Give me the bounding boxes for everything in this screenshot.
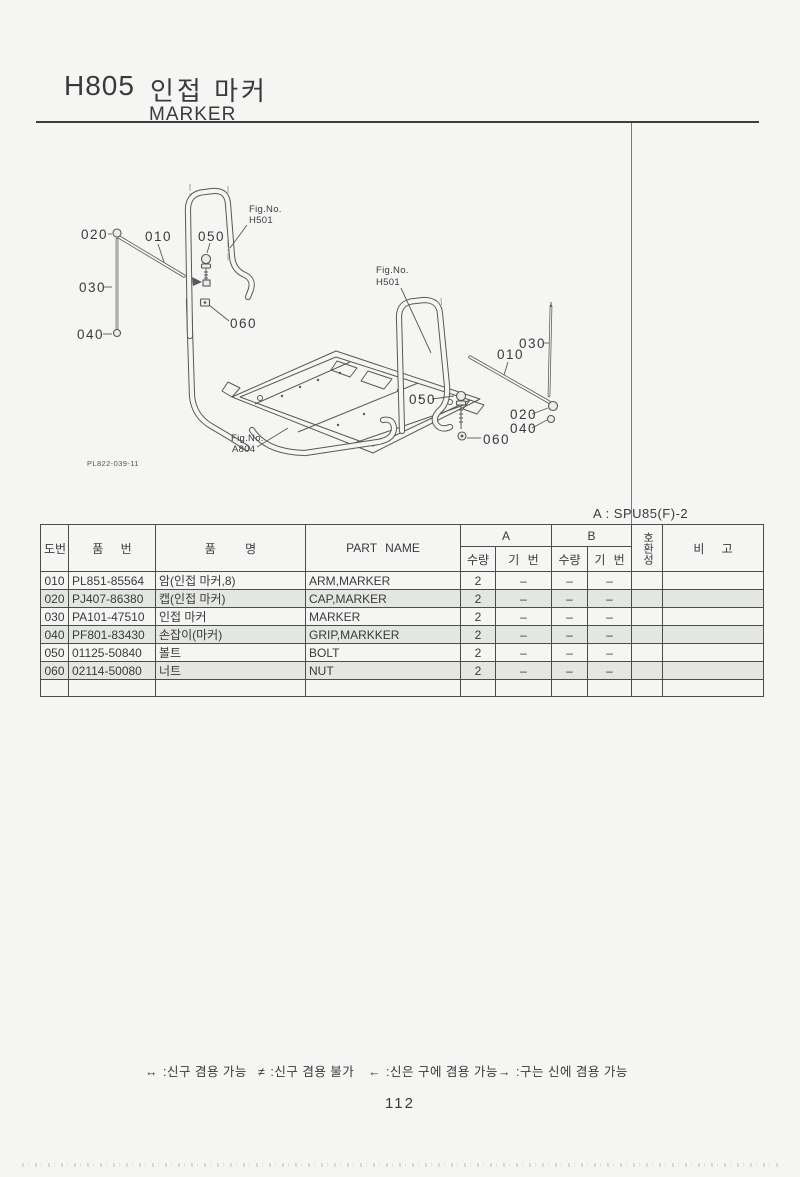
- legend-item-not-interchangeable: ≠:신구 겸용 불가: [258, 1061, 354, 1080]
- cell-serial-a: –: [496, 590, 552, 608]
- fig-ref-a804: A804: [232, 444, 255, 455]
- cell-name-ko: 너트: [156, 662, 306, 680]
- cell-part-no: PA101-47510: [69, 608, 156, 626]
- callout-010-left: 010: [145, 229, 172, 244]
- cell-qty-a: 2: [461, 626, 496, 644]
- cell-part-no: 02114-50080: [69, 662, 156, 680]
- cell-qty-b: –: [552, 608, 588, 626]
- cap-020-right: [549, 402, 558, 411]
- cell-no: 030: [41, 608, 69, 626]
- cell-name-ko: 볼트: [156, 644, 306, 662]
- callout-010-right: 010: [497, 347, 524, 362]
- legend-text: :신구 겸용 가능: [163, 1065, 247, 1079]
- table-row: 020 PJ407-86380 캡(인접 마커) CAP,MARKER 2 – …: [41, 590, 764, 608]
- fig-ref-label-left: Fig.No.: [249, 204, 282, 215]
- cell-part-name: MARKER: [306, 608, 461, 626]
- page-number: 112: [0, 1095, 800, 1112]
- fig-ref-label-right: Fig.No.: [376, 265, 409, 276]
- cell-serial-b: –: [588, 626, 632, 644]
- assembly-arrow: [192, 277, 202, 286]
- cell-serial-a: –: [496, 572, 552, 590]
- double-arrow-icon: ↔: [145, 1065, 158, 1079]
- bolt-050-left: [202, 255, 211, 282]
- cell-no: 050: [41, 644, 69, 662]
- cell-compat: [632, 590, 663, 608]
- nut-060-right: [458, 432, 466, 440]
- cell-remark: [663, 572, 764, 590]
- catalog-page: H805 인접 마커 MARKER: [0, 0, 800, 1177]
- nut-060-left: [201, 299, 210, 306]
- col-group-a: A: [461, 525, 552, 547]
- parts-diagram: 020 010 050 030 040 060 Fig.No. H501 Fig…: [0, 0, 800, 528]
- cell-serial-b: –: [588, 644, 632, 662]
- cell-name-ko: 손잡이(마커): [156, 626, 306, 644]
- legend-text: :신구 겸용 불가: [270, 1065, 354, 1079]
- cell-compat: [632, 644, 663, 662]
- drawing-number: PL822-039-11: [87, 459, 139, 468]
- cell-serial-b: –: [588, 572, 632, 590]
- cell-serial-a: –: [496, 608, 552, 626]
- cell-qty-b: –: [552, 644, 588, 662]
- cell-remark: [663, 644, 764, 662]
- cell-part-name: GRIP,MARKKER: [306, 626, 461, 644]
- table-row: 030 PA101-47510 인접 마커 MARKER 2 – – –: [41, 608, 764, 626]
- cell-no: 040: [41, 626, 69, 644]
- callout-020-left: 020: [81, 227, 108, 242]
- col-header-remark: 비 고: [663, 525, 764, 572]
- legend-item-interchangeable: ↔:신구 겸용 가능: [145, 1061, 247, 1080]
- cell-part-name: ARM,MARKER: [306, 572, 461, 590]
- callout-020-right: 020: [510, 407, 537, 422]
- cell-serial-a: –: [496, 626, 552, 644]
- left-arrow-icon: ←: [368, 1065, 381, 1079]
- col-header-name-ko: 품 명: [156, 525, 306, 572]
- fig-ref-h501-right: H501: [376, 277, 400, 288]
- cell-part-no: 01125-50840: [69, 644, 156, 662]
- col-header-qty-a: 수량: [461, 547, 496, 572]
- joint-plate-left: [203, 280, 210, 286]
- cell-remark: [663, 662, 764, 680]
- cell-qty-a: 2: [461, 590, 496, 608]
- table-row: 040 PF801-83430 손잡이(마커) GRIP,MARKKER 2 –…: [41, 626, 764, 644]
- cell-qty-b: –: [552, 590, 588, 608]
- legend-text: :구는 신에 겸용 가능: [516, 1065, 628, 1079]
- col-header-part-name: PART NAME: [306, 525, 461, 572]
- right-arrow-icon: →: [498, 1065, 511, 1079]
- cell-part-no: PJ407-86380: [69, 590, 156, 608]
- cell-no: 020: [41, 590, 69, 608]
- cell-compat: [632, 626, 663, 644]
- cell-compat: [632, 572, 663, 590]
- not-equal-icon: ≠: [258, 1065, 265, 1079]
- cell-remark: [663, 590, 764, 608]
- scan-noise-strip: [22, 1163, 778, 1167]
- cell-serial-a: –: [496, 662, 552, 680]
- legend-item-old-for-new: →:구는 신에 겸용 가능: [498, 1061, 628, 1080]
- grip-040-left: [114, 330, 121, 337]
- cell-name-ko: 인접 마커: [156, 608, 306, 626]
- cell-no: 010: [41, 572, 69, 590]
- table-row: 050 01125-50840 볼트 BOLT 2 – – –: [41, 644, 764, 662]
- cell-part-no: PF801-83430: [69, 626, 156, 644]
- cell-qty-a: 2: [461, 572, 496, 590]
- cell-qty-a: 2: [461, 608, 496, 626]
- callout-040-left: 040: [77, 327, 104, 342]
- cell-part-name: BOLT: [306, 644, 461, 662]
- cell-serial-b: –: [588, 662, 632, 680]
- fig-ref-h501-left: H501: [249, 215, 273, 226]
- cell-qty-b: –: [552, 626, 588, 644]
- cell-part-no: PL851-85564: [69, 572, 156, 590]
- cell-qty-a: 2: [461, 662, 496, 680]
- callout-030-left: 030: [79, 280, 106, 295]
- legend-text: :신은 구에 겸용 가능: [386, 1065, 498, 1079]
- legend-item-new-for-old: ←:신은 구에 겸용 가능: [368, 1061, 498, 1080]
- col-header-part-no: 품 번: [69, 525, 156, 572]
- leader-lines: [103, 225, 549, 447]
- grip-040-right: [548, 416, 555, 423]
- cell-name-ko: 캡(인접 마커): [156, 590, 306, 608]
- callout-040-right: 040: [510, 421, 537, 436]
- cell-remark: [663, 608, 764, 626]
- cell-compat: [632, 662, 663, 680]
- col-header-compat: 호환성: [632, 525, 663, 572]
- col-header-no: 도번: [41, 525, 69, 572]
- col-header-serial-b: 기 번: [588, 547, 632, 572]
- cell-part-name: NUT: [306, 662, 461, 680]
- cell-serial-b: –: [588, 608, 632, 626]
- fig-ref-label-frame: Fig.No.: [231, 433, 264, 444]
- callout-060-right: 060: [483, 432, 510, 447]
- col-header-qty-b: 수량: [552, 547, 588, 572]
- cell-qty-b: –: [552, 662, 588, 680]
- cell-serial-b: –: [588, 590, 632, 608]
- parts-table: 도번 품 번 품 명 PART NAME A B 호환성 비 고 수량 기 번 …: [40, 524, 764, 697]
- cell-qty-a: 2: [461, 644, 496, 662]
- callout-050-left: 050: [198, 229, 225, 244]
- cell-serial-a: –: [496, 644, 552, 662]
- table-empty-area: [41, 680, 764, 697]
- col-group-b: B: [552, 525, 632, 547]
- cell-name-ko: 암(인접 마커,8): [156, 572, 306, 590]
- cell-part-name: CAP,MARKER: [306, 590, 461, 608]
- cell-no: 060: [41, 662, 69, 680]
- cell-compat: [632, 608, 663, 626]
- cap-020-left: [113, 229, 121, 237]
- callout-060-left: 060: [230, 316, 257, 331]
- col-header-serial-a: 기 번: [496, 547, 552, 572]
- callout-050-right: 050: [409, 392, 436, 407]
- variant-note: A : SPU85(F)-2: [593, 506, 688, 521]
- table-row: 010 PL851-85564 암(인접 마커,8) ARM,MARKER 2 …: [41, 572, 764, 590]
- cell-remark: [663, 626, 764, 644]
- cell-qty-b: –: [552, 572, 588, 590]
- table-row: 060 02114-50080 너트 NUT 2 – – –: [41, 662, 764, 680]
